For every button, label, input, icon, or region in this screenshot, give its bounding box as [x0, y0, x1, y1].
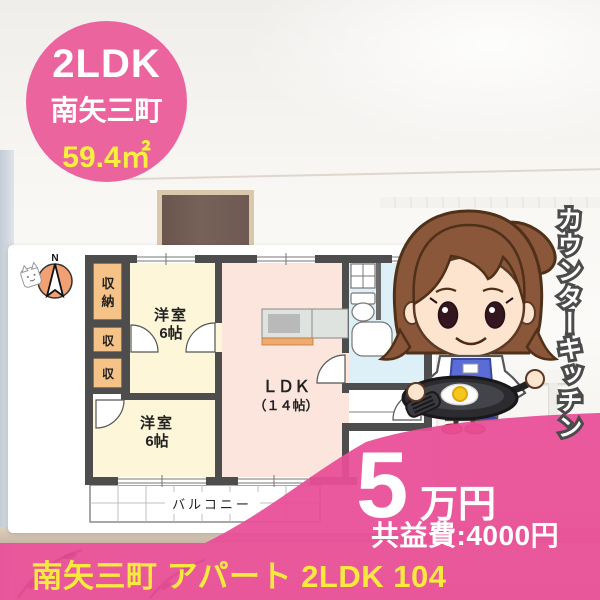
badge-area: 59.4㎡ [26, 132, 187, 176]
listing-title: 南矢三町 アパート 2LDK 104 [0, 551, 478, 596]
badge-location: 南矢三町 [26, 89, 187, 129]
property-badge: 2LDK 南矢三町 59.4㎡ [26, 21, 187, 182]
maintenance-fee: 共益費:4000円 [371, 514, 559, 554]
badge-layout-type: 2LDK [26, 42, 187, 87]
listing-flyer: N 収 納 収 収 洋室 6帖 洋室 6帖 ＬＤＫ （１４帖） バルコニー [0, 0, 600, 600]
feature-ribbon: カウンターキッチン [547, 204, 589, 442]
